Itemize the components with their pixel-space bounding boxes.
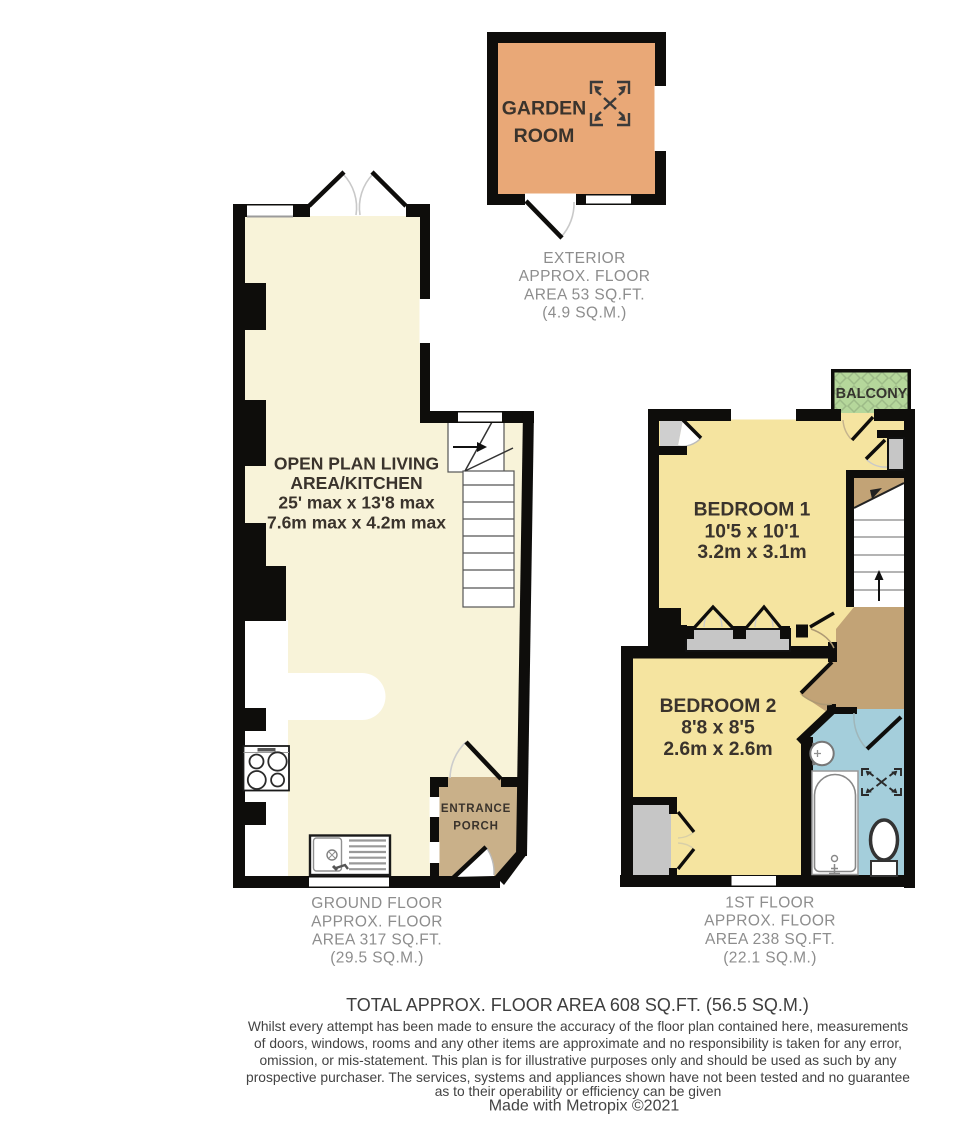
svg-text:AREA/KITCHEN: AREA/KITCHEN [290, 473, 422, 493]
svg-text:Made with Metropix ©2021: Made with Metropix ©2021 [489, 1098, 680, 1115]
svg-text:(4.9 SQ.M.): (4.9 SQ.M.) [542, 305, 627, 322]
svg-text:10'5 x 10'1: 10'5 x 10'1 [705, 521, 800, 542]
svg-text:prospective purchaser. The ser: prospective purchaser. The services, sys… [246, 1070, 910, 1085]
svg-text:APPROX. FLOOR: APPROX. FLOOR [311, 913, 443, 930]
svg-text:APPROX. FLOOR: APPROX. FLOOR [704, 913, 836, 930]
svg-text:EXTERIOR: EXTERIOR [543, 250, 625, 267]
svg-text:GROUND FLOOR: GROUND FLOOR [311, 895, 442, 912]
svg-text:PORCH: PORCH [453, 821, 499, 833]
svg-text:2.6m x 2.6m: 2.6m x 2.6m [663, 739, 772, 760]
svg-text:AREA 53 SQ.FT.: AREA 53 SQ.FT. [524, 286, 645, 303]
svg-text:AREA 238 SQ.FT.: AREA 238 SQ.FT. [705, 931, 835, 948]
svg-text:BALCONY: BALCONY [836, 386, 908, 402]
svg-text:8'8 x 8'5: 8'8 x 8'5 [681, 718, 755, 739]
svg-text:(22.1 SQ.M.): (22.1 SQ.M.) [723, 950, 817, 967]
svg-text:(29.5 SQ.M.): (29.5 SQ.M.) [330, 950, 424, 967]
svg-text:TOTAL APPROX. FLOOR AREA 608 S: TOTAL APPROX. FLOOR AREA 608 SQ.FT. (56.… [346, 995, 809, 1015]
svg-text:25' max x 13'8 max: 25' max x 13'8 max [278, 493, 434, 513]
svg-text:BEDROOM 2: BEDROOM 2 [660, 696, 777, 717]
svg-text:3.2m x 3.1m: 3.2m x 3.1m [697, 542, 806, 563]
svg-text:Whilst every attempt has been: Whilst every attempt has been made to en… [248, 1019, 908, 1034]
svg-text:AREA 317 SQ.FT.: AREA 317 SQ.FT. [312, 932, 442, 949]
svg-text:omission, or mis-statement. Th: omission, or mis-statement. This plan is… [259, 1053, 896, 1068]
svg-text:ENTRANCE: ENTRANCE [441, 803, 511, 815]
svg-text:OPEN PLAN LIVING: OPEN PLAN LIVING [274, 454, 439, 474]
svg-text:APPROX. FLOOR: APPROX. FLOOR [519, 268, 651, 285]
svg-text:of doors, windows, rooms and a: of doors, windows, rooms and any other i… [254, 1036, 902, 1051]
svg-text:1ST FLOOR: 1ST FLOOR [725, 895, 814, 912]
svg-text:ROOM: ROOM [514, 125, 575, 147]
svg-text:BEDROOM 1: BEDROOM 1 [694, 500, 811, 521]
svg-text:GARDEN: GARDEN [502, 98, 587, 120]
svg-text:7.6m max x 4.2m max: 7.6m max x 4.2m max [267, 512, 446, 532]
